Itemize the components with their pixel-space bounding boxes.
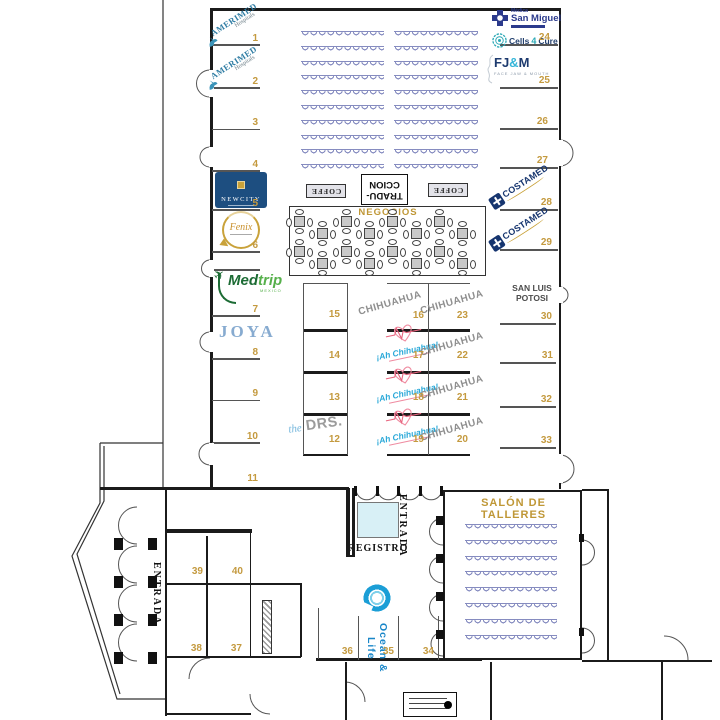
booth-divider [212, 358, 260, 360]
wall-segment [345, 662, 347, 720]
door-opening [557, 140, 563, 166]
negocios-table [381, 241, 405, 263]
audience-seating-left-row [301, 46, 384, 54]
workshop-room-title: SALÓN DE TALLERES [447, 497, 580, 521]
booth-number-31: 31 [529, 350, 553, 361]
coffee-station-right: COFFE [428, 183, 468, 197]
wall-segment [559, 8, 562, 489]
wall-segment [167, 656, 301, 658]
booth-number-1: 1 [234, 33, 258, 44]
ocean-life-logo: Ocean & Life [360, 584, 394, 679]
workshop-seating-row [465, 603, 557, 611]
booth-divider [500, 323, 556, 325]
booth-divider [500, 167, 558, 169]
negocios-table [451, 223, 475, 245]
registration-desk [357, 502, 399, 538]
booth-number-5: 5 [234, 198, 258, 209]
workshop-seating-row [465, 556, 557, 564]
door-post [440, 486, 443, 496]
wall-segment [346, 488, 350, 556]
expo-floor-plan: NEGOCIOS COFFE COFFE TRADU- CCION SAN LU… [0, 0, 720, 720]
door-post [148, 576, 157, 588]
negocios-table [358, 223, 382, 245]
medtrip-logo: ✈ Medtrip MEXICO [216, 272, 282, 293]
booth-number-13: 13 [316, 392, 340, 403]
booth-divider [358, 616, 359, 660]
audience-seating-left-row [301, 90, 384, 98]
hatched-column [262, 600, 272, 654]
booth-number-33: 33 [528, 435, 552, 446]
booth-divider [212, 315, 260, 317]
booth-number-35: 35 [370, 646, 394, 657]
audience-seating-right-row [394, 164, 478, 172]
booth-number-18: 18 [400, 392, 424, 403]
booth-divider [318, 608, 319, 659]
wall-segment [303, 454, 348, 457]
booth-number-23: 23 [444, 310, 468, 321]
door-post [354, 486, 357, 496]
translation-label-line2: CCION [362, 179, 407, 190]
booth-number-11: 11 [234, 473, 258, 484]
coffee-label: COFFE [433, 186, 463, 195]
negocios-table [335, 241, 359, 263]
entrance-label-main: ENTRADA [397, 494, 408, 566]
wall-segment [167, 713, 251, 715]
coffee-label: COFFE [311, 187, 341, 196]
wall-segment [352, 488, 355, 556]
door-post [148, 652, 157, 664]
door-post [397, 486, 400, 496]
workshop-seating-row [465, 571, 557, 579]
door-post [148, 538, 157, 550]
wall-segment [607, 489, 609, 661]
wall-segment [582, 489, 608, 491]
door-post [436, 630, 444, 639]
negocios-table [311, 253, 335, 275]
audience-seating-right-row [394, 61, 478, 69]
san-miguel-cross-icon [492, 10, 508, 26]
wall-segment [167, 529, 252, 533]
door-post [436, 592, 444, 601]
negocios-table [311, 223, 335, 245]
booth-divider [500, 447, 556, 449]
wall-segment [303, 371, 348, 374]
booth-number-32: 32 [528, 394, 552, 405]
fenix-tagline-line [230, 234, 252, 235]
negocios-table [428, 241, 452, 263]
door-post [436, 554, 444, 563]
audience-seating-right-row [394, 135, 478, 143]
booth-number-7: 7 [234, 304, 258, 315]
wall-segment [582, 660, 712, 662]
workshop-seating-row [465, 587, 557, 595]
audience-seating-left-row [301, 120, 384, 128]
booth-number-12: 12 [316, 434, 340, 445]
booth-number-14: 14 [316, 350, 340, 361]
wall-segment [661, 660, 663, 720]
negocios-table [405, 223, 429, 245]
booth-divider [398, 616, 399, 660]
audience-seating-right-row [394, 31, 478, 39]
audience-seating-right-row [394, 46, 478, 54]
negocios-table [405, 253, 429, 275]
door-post [579, 534, 584, 542]
wall-segment [490, 662, 492, 720]
booth-number-22: 22 [444, 350, 468, 361]
wall-segment [303, 329, 348, 332]
booth-number-20: 20 [444, 434, 468, 445]
negocios-table [451, 253, 475, 275]
wall-segment [165, 490, 167, 716]
negocios-table [428, 211, 452, 233]
workshop-seating-row [465, 619, 557, 627]
booth-number-27: 27 [524, 155, 548, 166]
audience-seating-right-row [394, 90, 478, 98]
booth-divider [303, 283, 348, 284]
door-opening [209, 332, 215, 352]
booth-divider [500, 209, 558, 211]
booth-divider [500, 249, 558, 251]
wall-segment [100, 487, 349, 490]
translation-booth: TRADU- CCION [361, 174, 408, 205]
booth-number-19: 19 [400, 434, 424, 445]
audience-seating-left-row [301, 149, 384, 157]
booth-divider [212, 251, 260, 253]
booth-number-25: 25 [526, 75, 550, 86]
booth-divider [212, 400, 260, 402]
booth-number-24: 24 [526, 32, 550, 43]
audience-seating-left-row [301, 61, 384, 69]
door-post [114, 576, 123, 588]
door-post [114, 652, 123, 664]
joya-logo: JOYA [219, 322, 276, 342]
door-post [114, 538, 123, 550]
audience-seating-left-row [301, 135, 384, 143]
coffee-station-left: COFFE [306, 184, 346, 198]
door-opening [209, 443, 215, 465]
booth-divider [500, 362, 556, 364]
workshop-seating-row [465, 540, 557, 548]
booth-number-21: 21 [444, 392, 468, 403]
door-post [114, 614, 123, 626]
wall-segment [167, 583, 301, 585]
booth-number-26: 26 [524, 116, 548, 127]
booth-number-4: 4 [234, 159, 258, 170]
workshop-seating-row [465, 635, 557, 643]
booth-number-38: 38 [178, 643, 202, 654]
wall-segment [250, 529, 252, 658]
door-post [376, 486, 379, 496]
booth-number-29: 29 [528, 237, 552, 248]
door-post [419, 486, 422, 496]
negocios-table [381, 211, 405, 233]
negocios-table [358, 253, 382, 275]
booth-divider [500, 87, 558, 89]
door-post [148, 614, 157, 626]
booth-number-34: 34 [410, 646, 434, 657]
booth-divider [212, 442, 260, 444]
audience-seating-right-row [394, 149, 478, 157]
booth-divider [500, 128, 558, 130]
audience-seating-left-row [301, 31, 384, 39]
audience-seating-left-row [301, 75, 384, 83]
san-miguel-bar [511, 25, 545, 28]
door-opening [209, 147, 215, 167]
booth-number-8: 8 [234, 347, 258, 358]
wall-segment [300, 583, 302, 657]
table-symbol-dot [444, 701, 452, 709]
face-profile-icon [482, 54, 496, 84]
door-post [579, 628, 584, 636]
booth-number-40: 40 [219, 566, 243, 577]
audience-seating-right-row [394, 120, 478, 128]
audience-seating-right-row [394, 75, 478, 83]
booth-number-30: 30 [528, 311, 552, 322]
booth-number-28: 28 [528, 197, 552, 208]
translation-label-line1: TRADU- [362, 190, 407, 201]
booth-number-10: 10 [234, 431, 258, 442]
door-opening [557, 287, 563, 303]
cells4cure-icon [492, 33, 507, 48]
workshop-seating-row [465, 524, 557, 532]
fjm-logo: FJ&M FACE JAW & MOUTH [494, 54, 549, 76]
negocios-table [288, 211, 312, 233]
negocios-table [335, 211, 359, 233]
booth-number-15: 15 [316, 309, 340, 320]
booth-number-6: 6 [234, 240, 258, 251]
booth-divider [212, 129, 260, 131]
negocios-table [288, 241, 312, 263]
wall-segment [206, 536, 208, 658]
newcity-emblem-icon [237, 181, 245, 189]
wall-segment [346, 555, 355, 557]
audience-seating-left-row [301, 164, 384, 172]
booth-number-36: 36 [329, 646, 353, 657]
door-opening [557, 454, 563, 483]
door-post [436, 516, 444, 525]
audience-seating-right-row [394, 105, 478, 113]
san-miguel-logo: Médica San Miguel [492, 8, 561, 28]
audience-seating-left-row [301, 105, 384, 113]
booth-number-9: 9 [234, 388, 258, 399]
booth-number-37: 37 [218, 643, 242, 654]
booth-number-17: 17 [400, 350, 424, 361]
booth-number-2: 2 [234, 76, 258, 87]
table-symbol [403, 692, 457, 717]
booth-number-16: 16 [400, 310, 424, 321]
booth-divider [500, 406, 556, 408]
booth-number-39: 39 [179, 566, 203, 577]
booth-number-3: 3 [234, 117, 258, 128]
san-luis-potosi-label: SAN LUIS POTOSI [506, 283, 558, 303]
